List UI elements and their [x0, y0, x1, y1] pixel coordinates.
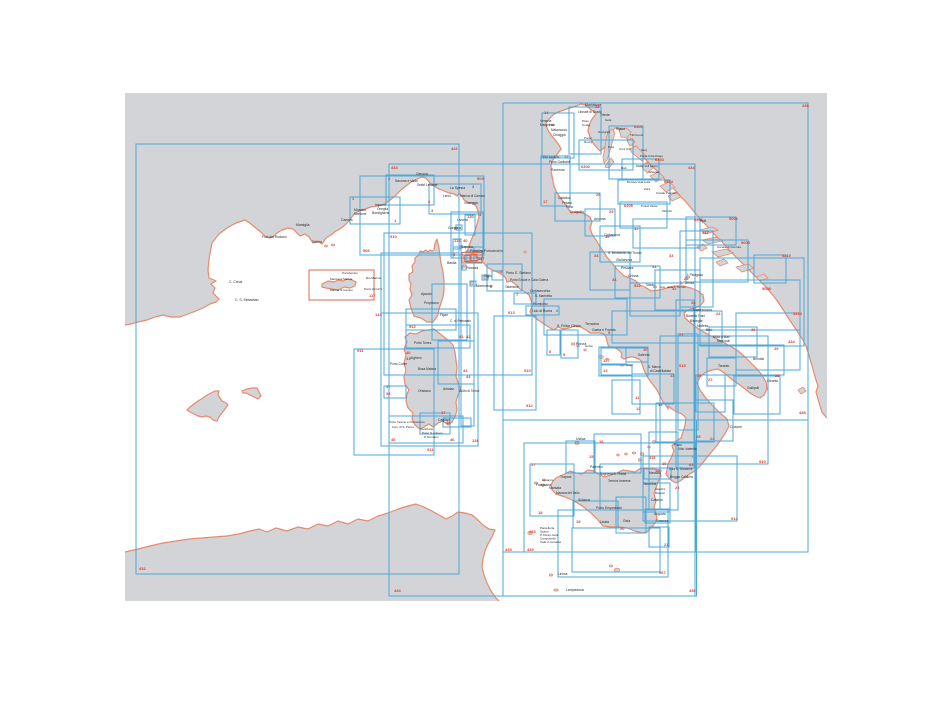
svg-text:910: 910	[390, 234, 397, 239]
svg-text:Marina di Carrara: Marina di Carrara	[460, 194, 485, 198]
svg-text:Pola: Pola	[608, 145, 614, 149]
svg-text:6301: 6301	[634, 124, 644, 129]
svg-text:41: 41	[459, 334, 464, 339]
svg-text:Sestri Levante: Sestri Levante	[417, 183, 438, 187]
svg-text:42: 42	[466, 334, 471, 339]
svg-text:20: 20	[620, 526, 625, 531]
svg-text:Lerici: Lerici	[443, 194, 451, 198]
svg-text:Senj: Senj	[641, 148, 647, 152]
svg-text:5008: 5008	[762, 286, 772, 291]
svg-text:Marghera: Marghera	[540, 123, 554, 127]
svg-text:13: 13	[603, 368, 608, 373]
svg-text:Fiumicino: Fiumicino	[533, 302, 548, 306]
svg-text:6305: 6305	[624, 203, 634, 208]
svg-text:Ustica: Ustica	[576, 437, 586, 441]
svg-text:26: 26	[596, 192, 601, 197]
svg-text:34: 34	[612, 277, 617, 282]
svg-text:37: 37	[386, 384, 391, 389]
svg-text:Termini Imerese: Termini Imerese	[608, 479, 631, 483]
svg-text:30: 30	[751, 327, 756, 332]
svg-text:10: 10	[643, 347, 648, 352]
svg-text:Bari: Bari	[706, 328, 712, 332]
svg-text:509: 509	[477, 176, 484, 181]
svg-text:C. di Pertusato: C. di Pertusato	[450, 319, 471, 323]
svg-text:Talamone: Talamone	[505, 285, 519, 289]
svg-text:Civitavecchia: Civitavecchia	[530, 289, 550, 293]
svg-text:Cres Krk: Cres Krk	[619, 147, 631, 151]
svg-text:Litorale di Grado: Litorale di Grado	[578, 110, 602, 114]
svg-text:Golfo di Tortoli: Golfo di Tortoli	[459, 389, 480, 393]
svg-text:Vibo Valentia: Vibo Valentia	[678, 447, 697, 451]
svg-text:Bordighera: Bordighera	[372, 211, 389, 215]
svg-text:967: 967	[659, 570, 666, 575]
svg-text:35: 35	[634, 226, 639, 231]
svg-text:Crotone: Crotone	[730, 425, 742, 429]
svg-text:Piombino Portovecchio: Piombino Portovecchio	[470, 249, 503, 253]
svg-text:Bastia: Bastia	[447, 261, 457, 265]
svg-text:Bisceglie: Bisceglie	[690, 319, 703, 323]
svg-text:Mali e Veli Losinj: Mali e Veli Losinj	[636, 164, 658, 168]
svg-text:Figari: Figari	[440, 313, 448, 317]
svg-text:Tibi Kural: Tibi Kural	[630, 133, 643, 137]
svg-text:118: 118	[649, 455, 656, 460]
svg-text:922: 922	[634, 283, 641, 288]
svg-text:Livorno: Livorno	[457, 218, 468, 222]
svg-text:Fano: Fano	[566, 205, 573, 209]
svg-text:Capri: Capri	[626, 363, 633, 367]
svg-text:Bagheria S. Flavia: Bagheria S. Flavia	[600, 472, 626, 476]
svg-text:915: 915	[679, 363, 686, 368]
svg-text:Porto Torres: Porto Torres	[414, 341, 432, 345]
svg-text:Cala d. tamarite: Cala d. tamarite	[540, 540, 562, 544]
svg-text:I. Pelagosa: I. Pelagosa	[687, 273, 703, 277]
svg-text:Foci del Rodano: Foci del Rodano	[262, 235, 287, 239]
svg-text:12: 12	[636, 406, 641, 411]
svg-text:Bosa Marina: Bosa Marina	[418, 367, 436, 371]
svg-text:25: 25	[696, 434, 701, 439]
svg-text:Palermo: Palermo	[590, 465, 603, 469]
svg-text:Gela: Gela	[623, 519, 630, 523]
svg-text:Taranto: Taranto	[718, 364, 729, 368]
svg-text:C. Creus: C. Creus	[229, 280, 243, 284]
svg-text:16: 16	[662, 461, 667, 466]
svg-text:15: 15	[589, 454, 594, 459]
svg-text:Ravenna: Ravenna	[551, 168, 565, 172]
svg-text:Viareggio: Viareggio	[464, 201, 478, 205]
svg-text:Oristano: Oristano	[418, 389, 431, 393]
svg-text:47: 47	[441, 410, 446, 415]
svg-text:Salerno: Salerno	[638, 353, 650, 357]
svg-text:33: 33	[669, 253, 674, 258]
svg-text:17: 17	[531, 462, 536, 467]
svg-text:6304: 6304	[664, 179, 674, 184]
svg-text:434: 434	[788, 339, 795, 344]
svg-text:33: 33	[652, 264, 657, 269]
svg-text:Tolone: Tolone	[312, 240, 322, 244]
svg-text:Marina di Campo: Marina di Campo	[330, 288, 353, 292]
svg-text:P. Romano: P. Romano	[424, 435, 439, 439]
svg-text:Chioggia: Chioggia	[553, 133, 566, 137]
svg-text:Gallipoli: Gallipoli	[747, 386, 759, 390]
svg-text:434: 434	[688, 165, 695, 170]
svg-text:22: 22	[675, 485, 680, 490]
svg-text:Gaeta e Formia: Gaeta e Formia	[592, 328, 616, 332]
svg-text:5210: 5210	[782, 253, 792, 258]
svg-text:Punta Kriza Drago: Punta Kriza Drago	[640, 154, 663, 158]
svg-text:Marsala: Marsala	[549, 486, 561, 490]
svg-text:40: 40	[406, 350, 411, 355]
svg-text:Rijeka: Rijeka	[616, 127, 625, 131]
svg-text:Marciana Marina: Marciana Marina	[330, 277, 353, 281]
svg-text:912: 912	[526, 403, 533, 408]
svg-text:Otranto: Otranto	[767, 379, 778, 383]
svg-text:Augusta: Augusta	[654, 512, 666, 516]
svg-text:Porto Garibaldi: Porto Garibaldi	[549, 160, 571, 164]
svg-text:Rio Marina: Rio Marina	[366, 276, 381, 280]
svg-text:432: 432	[451, 146, 458, 151]
svg-text:Pescara: Pescara	[621, 266, 634, 270]
svg-text:911: 911	[427, 447, 434, 452]
svg-text:5008: 5008	[741, 240, 751, 245]
svg-text:Giglio: Giglio	[484, 274, 492, 278]
svg-text:434: 434	[394, 588, 401, 593]
svg-text:Linosa: Linosa	[558, 572, 568, 576]
svg-text:910: 910	[524, 368, 531, 373]
svg-text:Trapani: Trapani	[560, 475, 572, 479]
svg-text:P.to Levante: P.to Levante	[543, 155, 560, 159]
svg-text:117: 117	[369, 293, 376, 298]
svg-text:913: 913	[508, 310, 515, 315]
svg-text:Reggio Calabria: Reggio Calabria	[670, 475, 693, 479]
svg-text:Rovinj: Rovinj	[584, 140, 593, 144]
svg-text:Canale Pasman: Canale Pasman	[656, 191, 677, 195]
svg-text:34: 34	[691, 300, 696, 305]
svg-text:911: 911	[357, 348, 364, 353]
svg-text:La Spezia: La Spezia	[450, 186, 465, 190]
svg-text:Pianosa: Pianosa	[466, 266, 478, 270]
svg-text:Sciacca: Sciacca	[578, 498, 590, 502]
svg-text:Umag: Umag	[582, 123, 590, 127]
svg-text:Lampedusa: Lampedusa	[566, 588, 584, 592]
svg-text:43: 43	[463, 368, 468, 373]
svg-text:14: 14	[544, 110, 549, 115]
svg-text:Anc. delle I. Tremiti: Anc. delle I. Tremiti	[660, 285, 686, 289]
svg-text:18: 18	[538, 510, 543, 515]
svg-text:Levanzo: Levanzo	[542, 478, 554, 482]
svg-text:Catania: Catania	[651, 498, 663, 502]
svg-text:Terracina: Terracina	[585, 322, 599, 326]
svg-text:Porto Azzurro: Porto Azzurro	[364, 287, 383, 291]
svg-text:Trieste: Trieste	[600, 113, 610, 117]
svg-text:117: 117	[478, 256, 485, 261]
svg-text:Brindisi: Brindisi	[753, 357, 764, 361]
svg-text:Molfetta: Molfetta	[697, 324, 709, 328]
svg-text:128: 128	[472, 438, 479, 443]
svg-text:44: 44	[466, 374, 471, 379]
svg-text:Monopoli: Monopoli	[717, 339, 730, 343]
svg-text:S. Marinella: S. Marinella	[535, 294, 552, 298]
svg-text:Porto Ercole e Cala Galera: Porto Ercole e Cala Galera	[510, 278, 548, 282]
svg-text:438: 438	[799, 410, 806, 415]
svg-text:5008: 5008	[729, 216, 739, 221]
svg-text:16: 16	[599, 439, 604, 444]
svg-text:19: 19	[576, 519, 581, 524]
svg-text:Barletta Trani: Barletta Trani	[686, 314, 705, 318]
svg-text:S. Benedetto del Tronto: S. Benedetto del Tronto	[608, 251, 642, 255]
svg-text:Siracusa: Siracusa	[656, 519, 669, 523]
svg-text:Manfredonia: Manfredonia	[693, 308, 712, 312]
svg-text:Ortona: Ortona	[628, 274, 638, 278]
svg-text:29: 29	[774, 346, 779, 351]
svg-text:Portoferraio: Portoferraio	[342, 271, 358, 275]
svg-text:Mazara del Vallo: Mazara del Vallo	[556, 491, 580, 495]
svg-text:Taormina: Taormina	[643, 482, 656, 486]
svg-text:21: 21	[664, 542, 669, 547]
svg-text:46: 46	[450, 437, 455, 442]
svg-text:27: 27	[708, 377, 713, 382]
svg-text:Ischia: Ischia	[585, 344, 593, 348]
svg-text:24: 24	[710, 436, 715, 441]
svg-text:34: 34	[594, 253, 599, 258]
svg-text:25: 25	[609, 209, 614, 214]
svg-text:Civitanova: Civitanova	[604, 233, 620, 237]
svg-text:Can. di S. Pietro: Can. di S. Pietro	[392, 425, 414, 429]
svg-text:Ajaccio: Ajaccio	[421, 292, 432, 296]
svg-text:Rab: Rab	[621, 166, 627, 170]
svg-text:506: 506	[363, 248, 370, 253]
svg-text:433: 433	[529, 529, 536, 534]
svg-text:Zara: Zara	[644, 187, 651, 191]
svg-text:17: 17	[543, 199, 548, 204]
svg-text:Porto Conte: Porto Conte	[390, 362, 407, 366]
svg-text:Genova: Genova	[416, 172, 428, 176]
svg-text:910: 910	[759, 459, 766, 464]
svg-text:28: 28	[775, 373, 780, 378]
svg-text:Arbatax: Arbatax	[443, 387, 454, 391]
svg-text:435: 435	[505, 547, 512, 552]
svg-text:Porto Empedocle: Porto Empedocle	[596, 506, 622, 510]
svg-text:14: 14	[658, 402, 663, 407]
svg-text:912: 912	[409, 324, 416, 329]
svg-text:38: 38	[386, 391, 391, 396]
svg-text:134: 134	[375, 312, 382, 317]
svg-text:438: 438	[802, 103, 809, 108]
svg-text:Villa S. Giovanni: Villa S. Giovanni	[669, 467, 693, 471]
svg-text:Pesaro: Pesaro	[562, 201, 572, 205]
svg-text:26: 26	[697, 373, 702, 378]
svg-text:Lido di Roma: Lido di Roma	[532, 309, 552, 313]
svg-text:Prolaz Zadar: Prolaz Zadar	[641, 204, 658, 208]
svg-text:40: 40	[463, 238, 468, 243]
svg-text:Sibenik: Sibenik	[662, 209, 672, 213]
svg-text:Vasto: Vasto	[646, 283, 655, 287]
svg-text:Split: Split	[700, 219, 706, 223]
svg-text:437: 437	[702, 230, 709, 235]
svg-text:Malamocco: Malamocco	[551, 128, 568, 132]
svg-text:116: 116	[454, 238, 461, 243]
svg-text:Messina: Messina	[649, 471, 661, 475]
svg-text:Cagliari: Cagliari	[438, 418, 450, 422]
svg-text:434: 434	[391, 165, 398, 170]
svg-text:Cannes: Cannes	[341, 218, 353, 222]
svg-text:Gorgona: Gorgona	[448, 226, 461, 230]
svg-text:439: 439	[527, 547, 534, 552]
svg-text:Canale di Curzola: Canale di Curzola	[717, 245, 741, 249]
svg-text:Propriano: Propriano	[424, 301, 439, 305]
svg-text:432: 432	[139, 566, 146, 571]
svg-text:Riposto: Riposto	[655, 491, 666, 495]
svg-text:436: 436	[689, 588, 696, 593]
svg-text:Alghero: Alghero	[410, 356, 422, 360]
svg-text:46: 46	[391, 437, 396, 442]
svg-text:Monfalcone: Monfalcone	[585, 103, 602, 107]
svg-text:Giulianova: Giulianova	[616, 258, 632, 262]
svg-text:5210: 5210	[793, 311, 803, 316]
svg-text:914: 914	[731, 516, 738, 521]
svg-text:Senigallia: Senigallia	[570, 210, 584, 214]
svg-text:12: 12	[564, 154, 569, 159]
svg-text:6302: 6302	[581, 164, 591, 169]
svg-text:Bozava Vela Luka: Bozava Vela Luka	[627, 180, 651, 184]
svg-text:Ancona: Ancona	[594, 217, 606, 221]
svg-text:Licata: Licata	[600, 520, 609, 524]
svg-text:Porto S. Stefano: Porto S. Stefano	[506, 271, 531, 275]
svg-text:Mola di Bari: Mola di Bari	[713, 335, 730, 339]
svg-text:24: 24	[716, 311, 721, 316]
svg-text:Jablanac: Jablanac	[648, 170, 660, 174]
svg-text:Savona e Vado: Savona e Vado	[395, 179, 418, 183]
svg-text:21: 21	[679, 332, 684, 337]
svg-text:Porto Vesme e Portoscuso: Porto Vesme e Portoscuso	[389, 420, 425, 424]
svg-text:Cattolica: Cattolica	[558, 196, 571, 200]
svg-text:Isola: Isola	[605, 118, 612, 122]
svg-text:127: 127	[603, 358, 610, 363]
svg-text:S. Felice Circeo: S. Felice Circeo	[557, 324, 581, 328]
svg-text:Novigrad: Novigrad	[598, 130, 610, 134]
svg-text:Montecristo: Montecristo	[476, 284, 493, 288]
svg-text:Marsiglia: Marsiglia	[296, 223, 310, 227]
svg-text:Mentone: Mentone	[354, 212, 367, 216]
svg-text:di Castellabate: di Castellabate	[650, 369, 671, 373]
svg-text:C. S. Sebastian: C. S. Sebastian	[235, 298, 259, 302]
